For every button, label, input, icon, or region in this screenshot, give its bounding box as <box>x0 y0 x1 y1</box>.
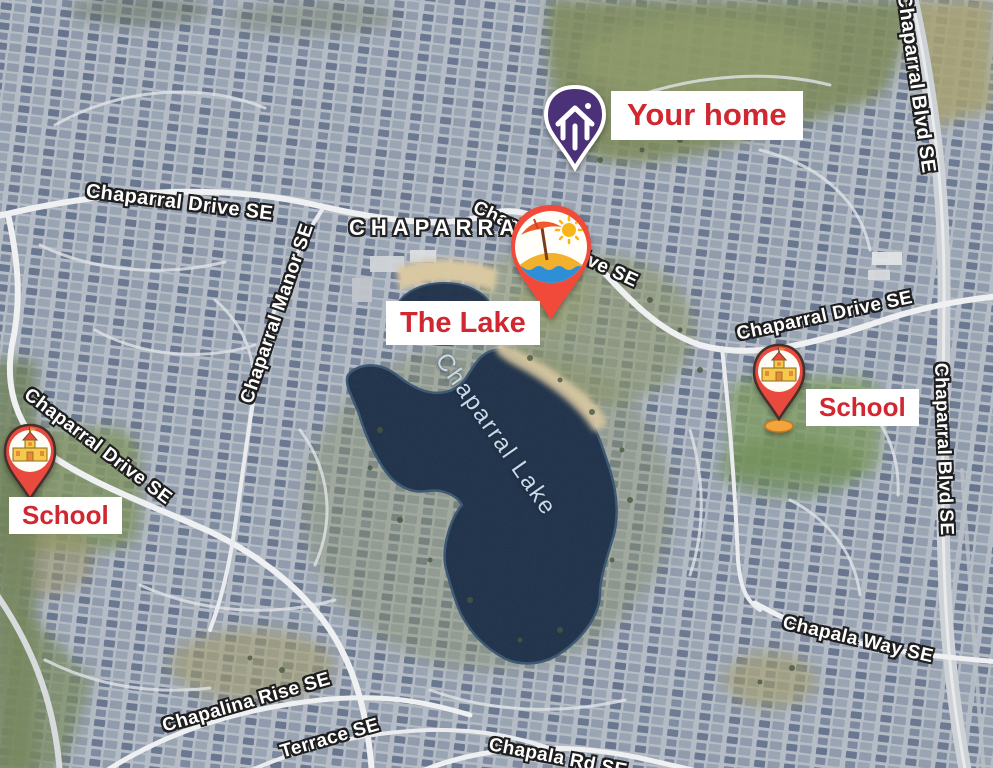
school-pin-icon <box>750 342 808 434</box>
map-canvas[interactable]: Chaparral Drive SE Chaparral Drive SE Ch… <box>0 0 993 768</box>
marker-label-school-right: School <box>806 389 919 426</box>
marker-label-the-lake: The Lake <box>386 301 540 345</box>
marker-school-right[interactable] <box>750 342 808 439</box>
marker-home[interactable] <box>542 84 608 177</box>
home-pin-icon <box>542 84 608 172</box>
marker-label-school-left: School <box>9 497 122 534</box>
marker-label-home: Your home <box>611 91 803 140</box>
satellite-map <box>0 0 993 768</box>
